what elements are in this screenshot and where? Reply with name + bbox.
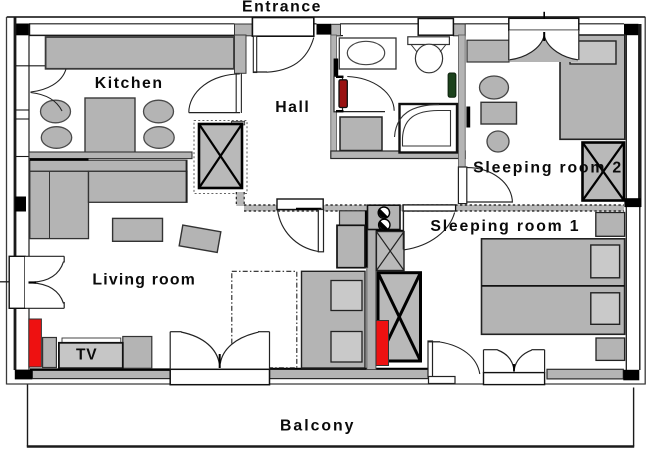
svg-text:Balcony: Balcony <box>280 417 355 434</box>
svg-text:Sleeping room 1: Sleeping room 1 <box>430 218 580 235</box>
svg-text:Kitchen: Kitchen <box>95 75 164 92</box>
svg-text:Hall: Hall <box>275 99 310 116</box>
svg-text:Entrance: Entrance <box>242 0 322 16</box>
svg-text:TV: TV <box>76 347 97 364</box>
svg-text:Living room: Living room <box>92 271 196 288</box>
svg-text:Sleeping room 2: Sleeping room 2 <box>473 159 623 176</box>
